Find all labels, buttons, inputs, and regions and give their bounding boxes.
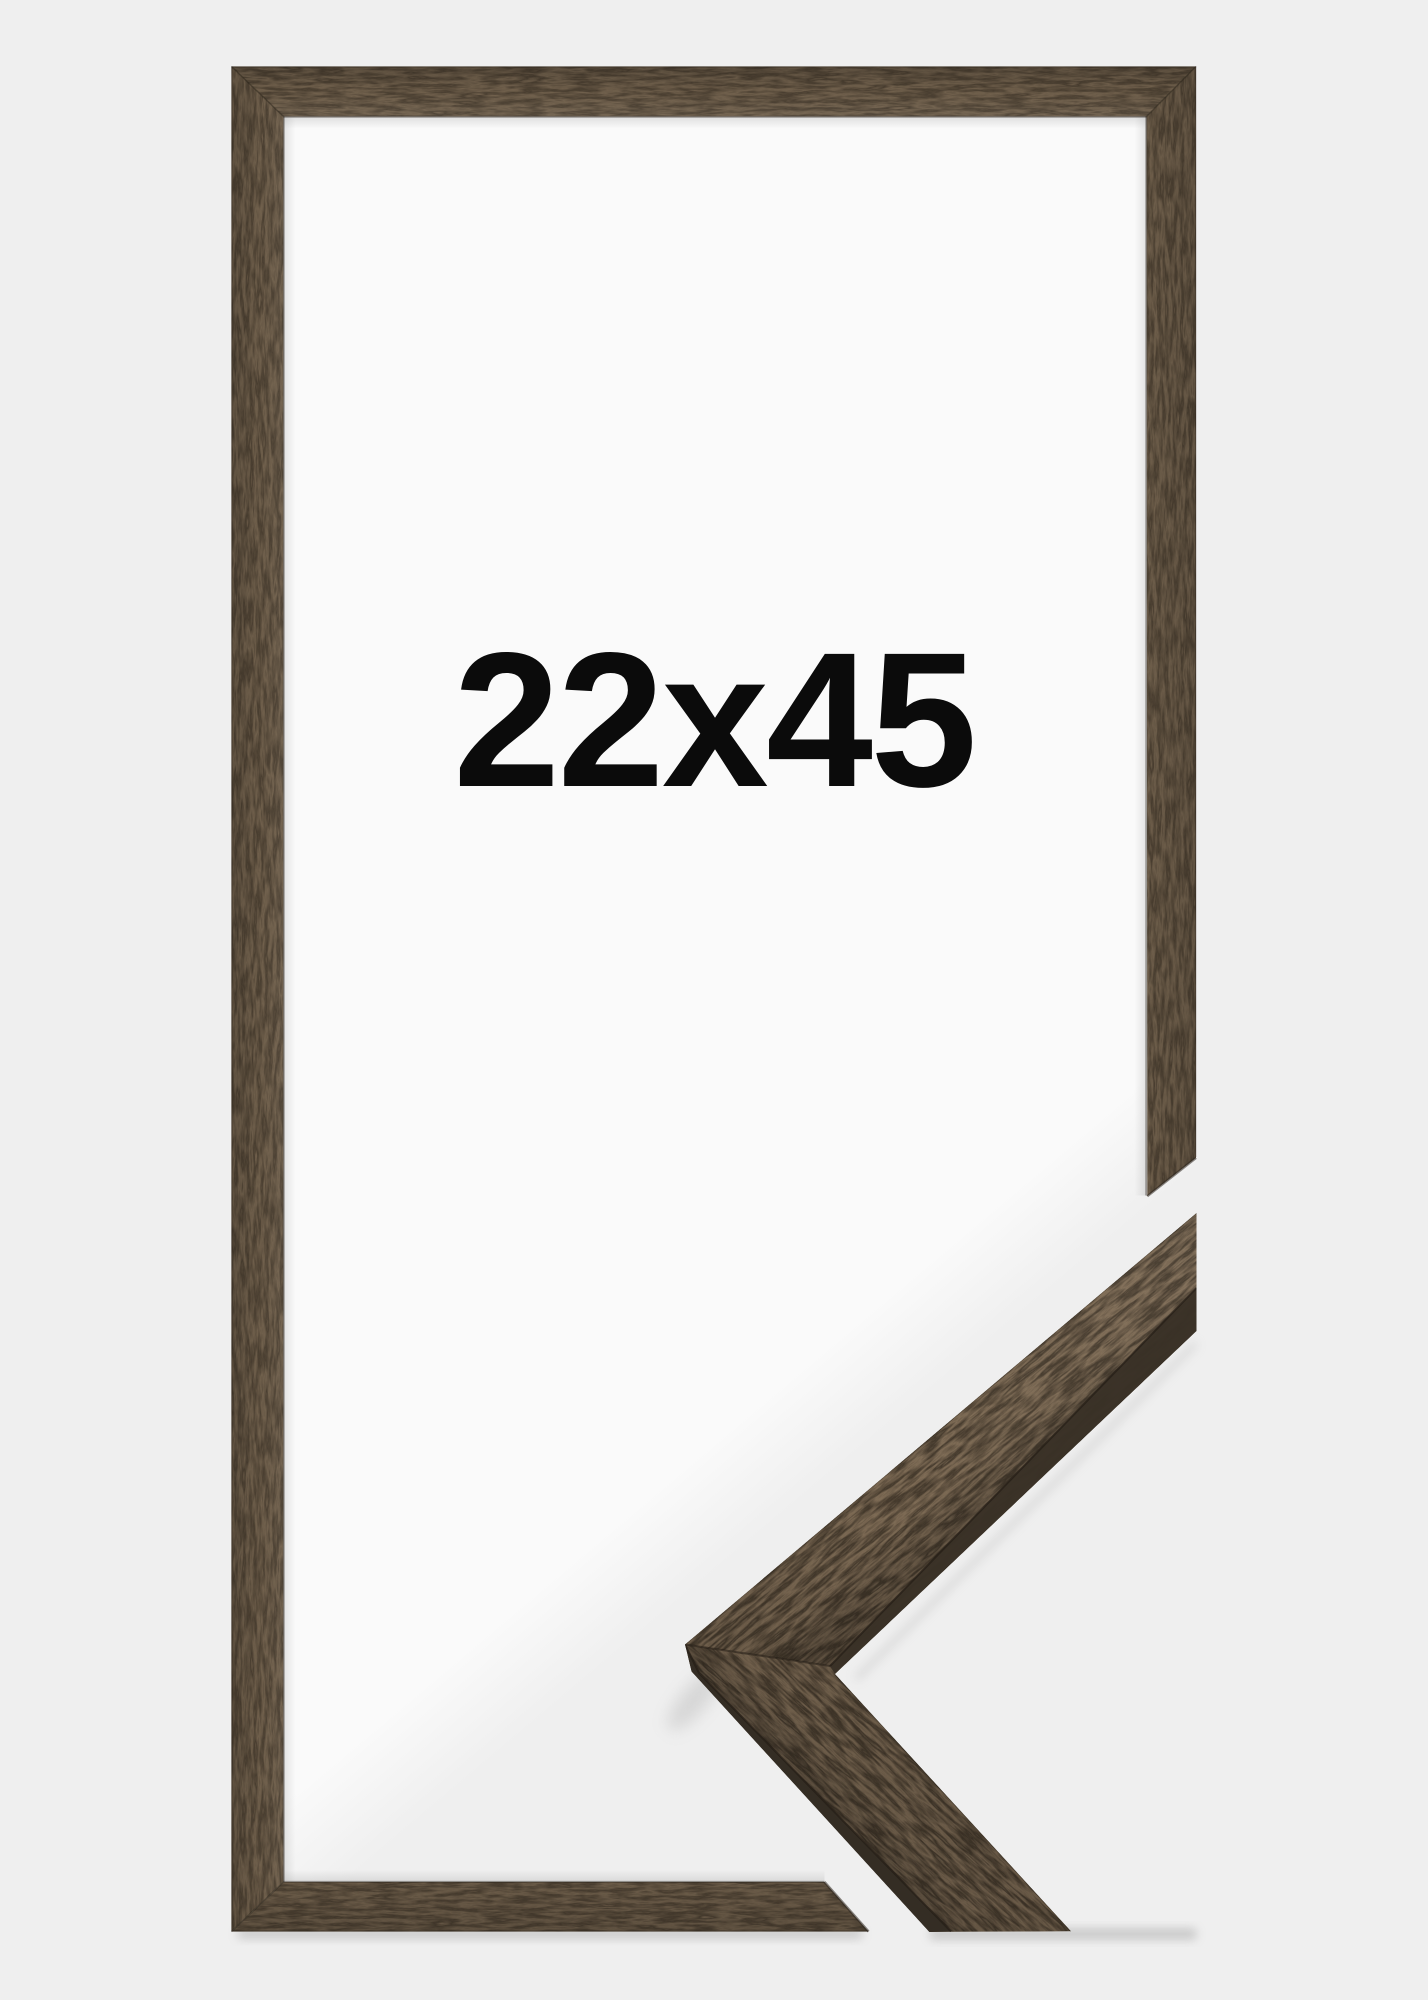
svg-text:22x45: 22x45 (453, 612, 974, 827)
